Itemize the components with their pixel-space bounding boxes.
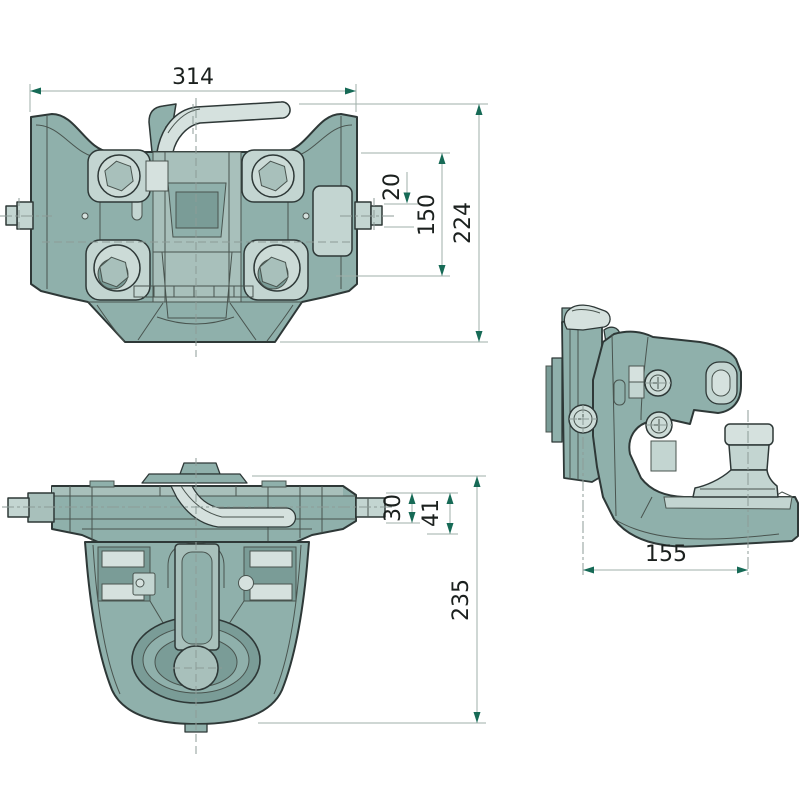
front-bolt-bottom-left xyxy=(86,240,150,300)
side-handle xyxy=(564,305,610,330)
dim-label-pin-dia: 20 xyxy=(380,173,405,201)
technical-drawing: 314 224 150 20 xyxy=(0,0,800,800)
center-pocket-inner xyxy=(176,192,218,228)
arrowhead xyxy=(447,493,454,504)
handle-tip xyxy=(564,305,610,330)
arrowhead xyxy=(30,88,41,95)
dim-label-width: 314 xyxy=(172,65,214,90)
label-panel xyxy=(313,186,352,256)
arrowhead xyxy=(439,153,446,164)
dim-label-pin-dia: 30 xyxy=(381,494,406,522)
front-bolt-bottom-right xyxy=(244,240,308,300)
front-view: 314 224 150 20 xyxy=(0,65,488,357)
dim-label-depth: 235 xyxy=(449,579,474,621)
side-view: 155 xyxy=(546,305,798,578)
pin-flare xyxy=(693,470,778,497)
dim-label-mount-to-pin: 155 xyxy=(645,542,687,567)
top-tabs xyxy=(142,463,247,483)
pad xyxy=(629,366,644,382)
arrowhead xyxy=(737,567,748,574)
pivot-circle xyxy=(239,576,254,591)
arrowhead xyxy=(409,493,416,504)
plate-bump xyxy=(90,481,114,487)
arrowhead xyxy=(476,331,483,342)
lock-pad xyxy=(250,551,292,567)
top-view: 30 41 235 xyxy=(2,458,486,754)
bolt-tab xyxy=(146,161,168,191)
arrowhead xyxy=(345,88,356,95)
coupling-pin-core xyxy=(182,552,212,644)
arrowhead xyxy=(583,567,594,574)
mid-block xyxy=(651,441,676,471)
lock-pad xyxy=(250,584,292,600)
handle-tube xyxy=(157,102,290,152)
rivet-dot xyxy=(303,213,309,219)
front-handle xyxy=(149,102,290,152)
arrowhead xyxy=(474,476,481,487)
dim-label-flange-span: 150 xyxy=(415,194,440,236)
dim-label-flange-height: 41 xyxy=(419,499,444,527)
pad xyxy=(629,382,644,398)
latch-plate-hole xyxy=(136,579,144,587)
rivet-dot xyxy=(82,213,88,219)
arm-notch-inner xyxy=(712,370,730,396)
plate-strip xyxy=(552,358,562,442)
arrowhead xyxy=(476,104,483,115)
side-hook-pin xyxy=(693,424,778,497)
drawing-page: 314 224 150 20 xyxy=(0,0,800,800)
front-bolt-top-right xyxy=(242,150,304,202)
lock-pad xyxy=(102,551,144,567)
pin-shaft xyxy=(729,445,769,470)
jaw-surface xyxy=(664,497,792,509)
top-tab xyxy=(142,474,247,483)
top-tab-small xyxy=(180,463,220,474)
arrowhead xyxy=(439,265,446,276)
arrowhead xyxy=(474,712,481,723)
plate-bump xyxy=(262,481,286,487)
dim-label-height: 224 xyxy=(451,202,476,244)
pin-cap xyxy=(725,424,773,445)
arrowhead xyxy=(447,523,454,534)
arrowhead xyxy=(409,512,416,523)
